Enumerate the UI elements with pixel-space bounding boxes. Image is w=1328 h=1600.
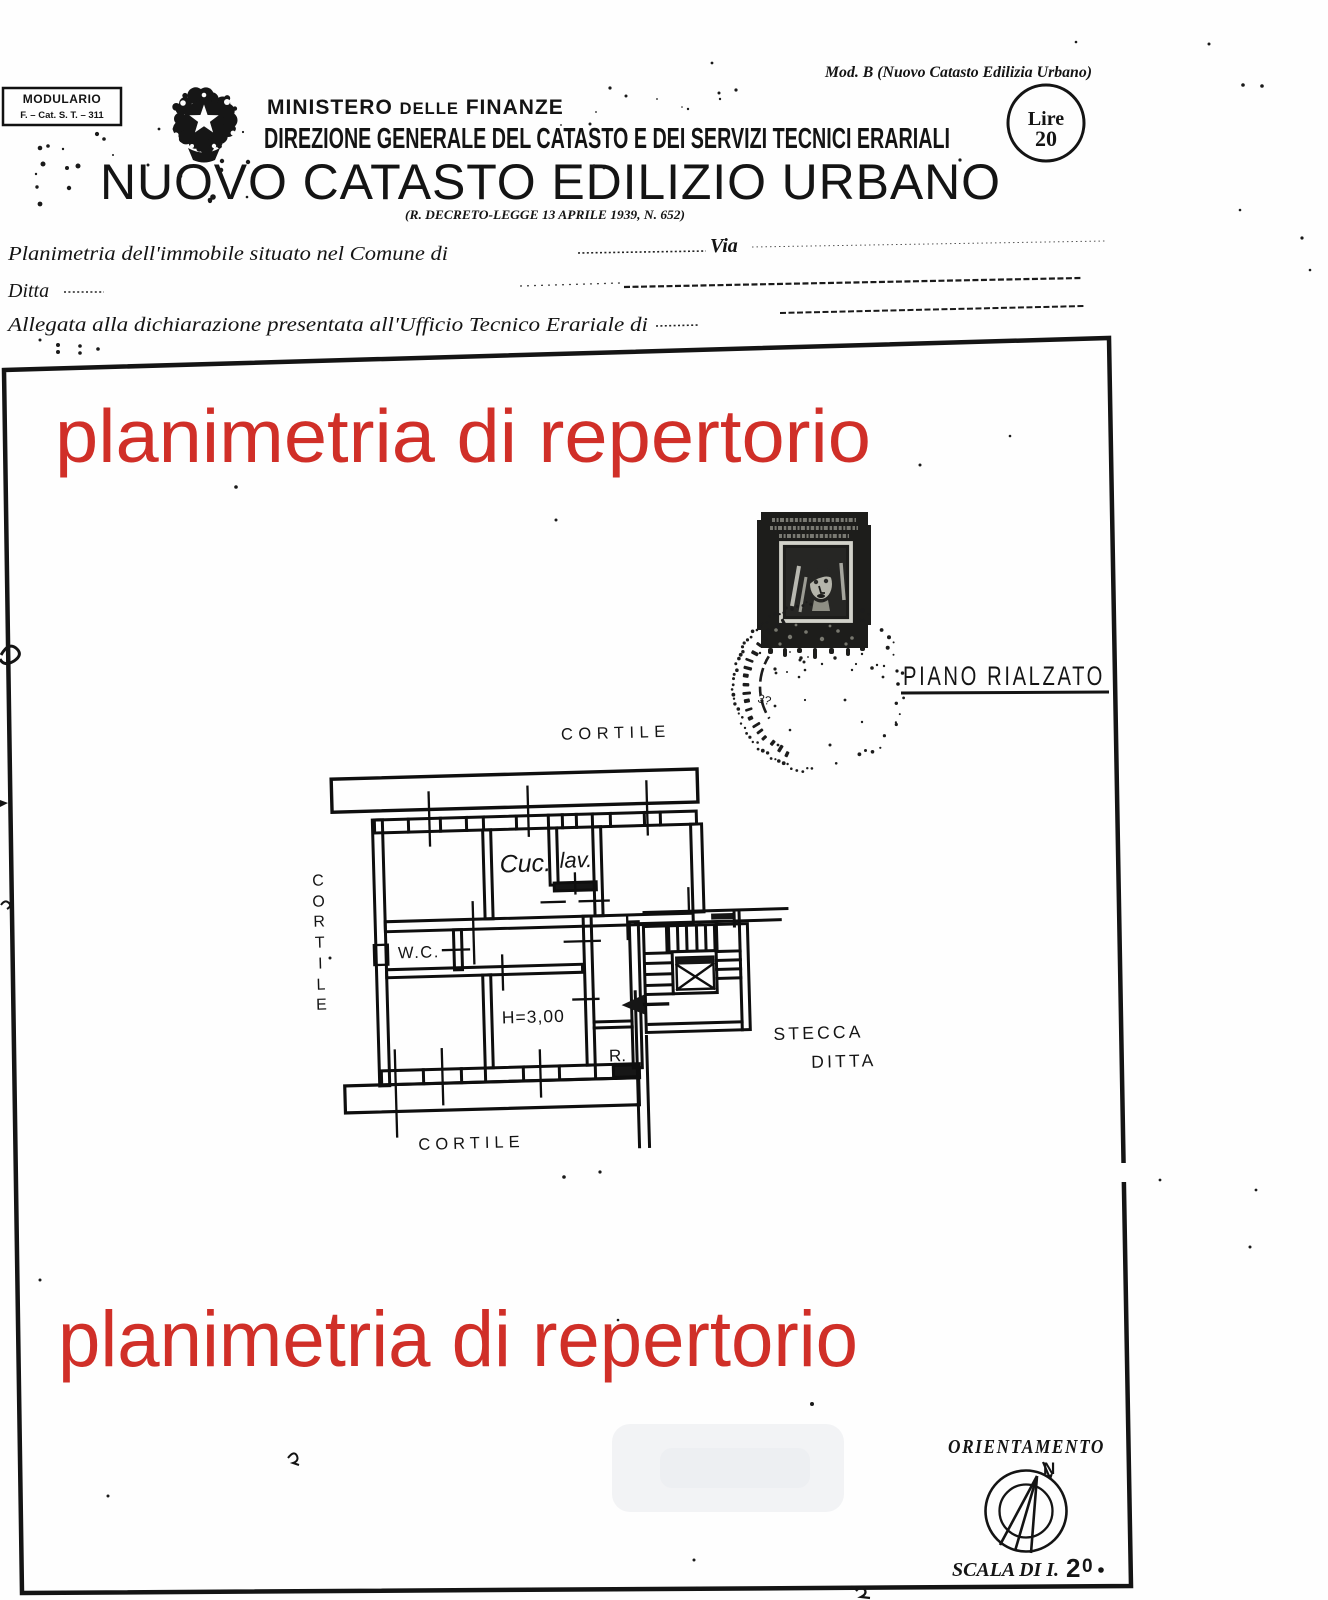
svg-text:lav.: lav. [559, 847, 592, 873]
svg-text:T: T [315, 934, 325, 951]
svg-text:Allegata alla dichiarazione pr: Allegata alla dichiarazione presentata a… [6, 314, 648, 336]
svg-text:0: 0 [1082, 1556, 1093, 1577]
svg-text:SCALA DI I.: SCALA DI I. [952, 1560, 1059, 1581]
svg-text:Ditta: Ditta [7, 280, 49, 302]
svg-text:Planimetria dell'immobile situ: Planimetria dell'immobile situato nel Co… [7, 243, 448, 265]
svg-text:DITTA: DITTA [811, 1050, 877, 1072]
svg-text:planimetria di repertorio: planimetria di repertorio [58, 1294, 858, 1383]
svg-text:R.: R. [609, 1046, 627, 1065]
svg-text:R: R [313, 913, 325, 930]
svg-text:I: I [318, 956, 323, 973]
svg-text:L: L [316, 976, 325, 993]
svg-text:ORIENTAMENTO: ORIENTAMENTO [948, 1437, 1105, 1458]
svg-text:2: 2 [1066, 1553, 1080, 1583]
svg-text:W.C.: W.C. [398, 943, 440, 962]
svg-text:Via: Via [710, 235, 738, 257]
svg-text:CORTILE: CORTILE [561, 723, 671, 744]
svg-text:N: N [1043, 1459, 1055, 1478]
svg-text:Cuc.: Cuc. [499, 849, 551, 878]
svg-text:(R. DECRETO-LEGGE 13 APRILE 19: (R. DECRETO-LEGGE 13 APRILE 1939, N. 652… [405, 208, 685, 222]
svg-text:Mod. B (Nuovo Catasto Edilizia: Mod. B (Nuovo Catasto Edilizia Urbano) [824, 64, 1092, 81]
svg-text:CORTILE: CORTILE [418, 1133, 525, 1154]
svg-text:MODULARIO: MODULARIO [23, 92, 102, 106]
svg-text:planimetria di repertorio: planimetria di repertorio [55, 394, 871, 478]
svg-text:PIANO RIALZATO: PIANO RIALZATO [903, 661, 1105, 691]
svg-text:O: O [312, 893, 325, 910]
svg-text:NUOVO CATASTO EDILIZIO URBANO: NUOVO CATASTO EDILIZIO URBANO [100, 154, 1000, 210]
svg-text:C: C [312, 872, 324, 889]
svg-text:DIREZIONE GENERALE DEL CATASTO: DIREZIONE GENERALE DEL CATASTO E DEI SER… [264, 123, 950, 155]
svg-text:MINISTERO DELLE FINANZE: MINISTERO DELLE FINANZE [267, 96, 565, 119]
svg-text:H=3,00: H=3,00 [502, 1006, 565, 1028]
svg-text:E: E [316, 996, 327, 1013]
svg-text:STECCA: STECCA [773, 1021, 864, 1044]
svg-text:20: 20 [1035, 126, 1057, 151]
svg-text:F. – Cat. S. T. – 311: F. – Cat. S. T. – 311 [20, 110, 104, 121]
